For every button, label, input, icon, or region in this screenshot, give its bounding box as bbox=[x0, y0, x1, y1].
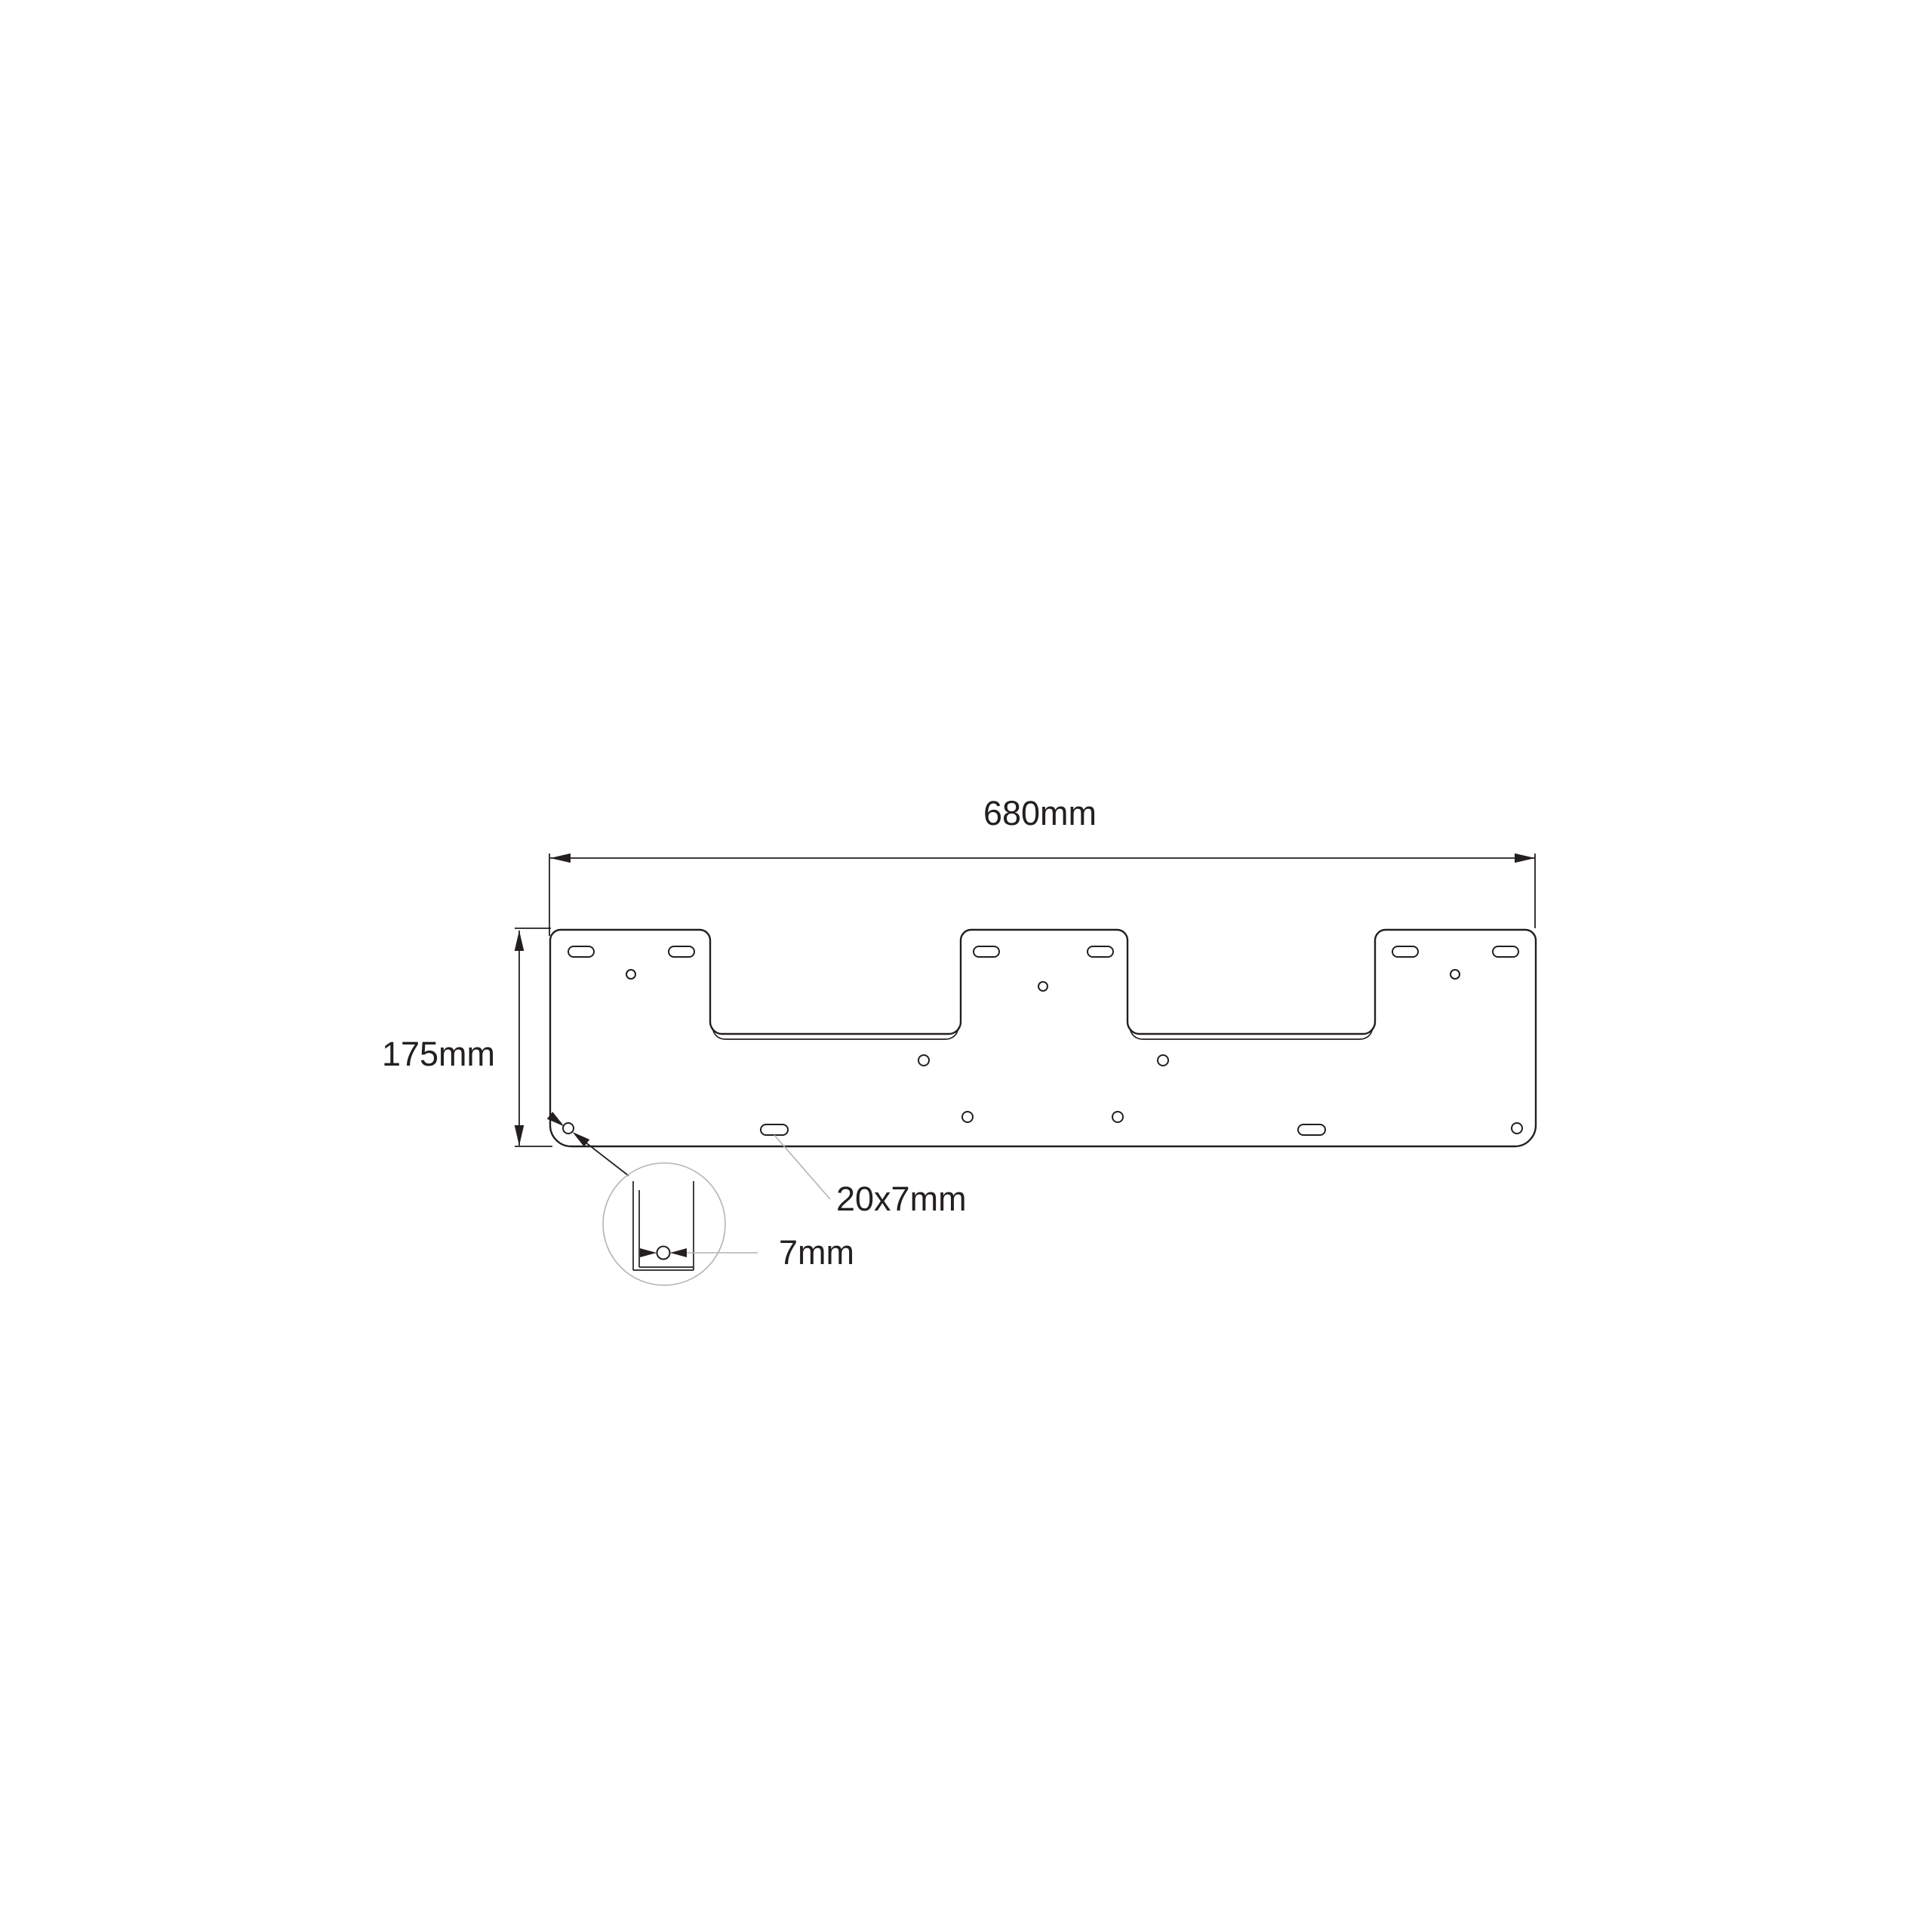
mounting-slot bbox=[1298, 1124, 1325, 1135]
mounting-slot bbox=[761, 1124, 788, 1135]
screw-hole bbox=[1112, 1112, 1123, 1122]
screw-hole bbox=[1451, 970, 1460, 979]
technical-drawing: 680mm 175mm 7mm 20x7mm bbox=[0, 0, 1932, 1932]
mounting-slot bbox=[1392, 946, 1418, 957]
height-dimension-label: 175mm bbox=[382, 1035, 495, 1073]
screw-hole bbox=[626, 970, 635, 979]
mounting-slot bbox=[568, 946, 594, 957]
corner-hole bbox=[1512, 1123, 1522, 1134]
mounting-slot bbox=[1493, 946, 1518, 957]
corner-hole bbox=[563, 1123, 574, 1134]
screw-hole bbox=[1038, 982, 1048, 991]
screw-hole bbox=[1158, 1055, 1168, 1066]
mounting-slot bbox=[669, 946, 694, 957]
mounting-slot bbox=[1088, 946, 1113, 957]
screw-hole bbox=[962, 1112, 973, 1122]
detail-hole bbox=[657, 1247, 670, 1260]
mounting-slot bbox=[974, 946, 999, 957]
canvas-background bbox=[0, 0, 1932, 1932]
slot-size-label: 20x7mm bbox=[836, 1180, 967, 1218]
width-dimension-label: 680mm bbox=[983, 794, 1097, 832]
hole-diameter-label: 7mm bbox=[779, 1233, 854, 1272]
screw-hole bbox=[918, 1055, 929, 1066]
